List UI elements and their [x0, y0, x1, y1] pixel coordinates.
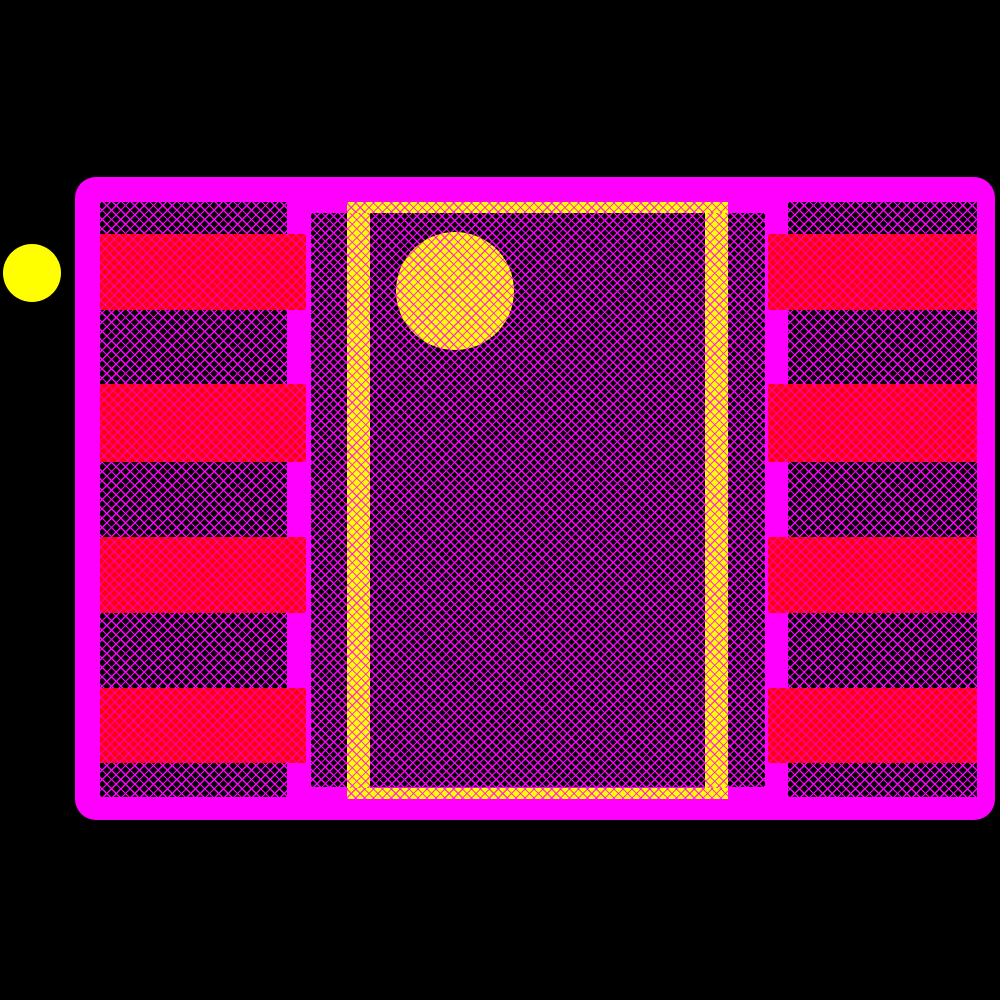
pad-left-2	[100, 384, 306, 462]
pad-right-3	[768, 537, 977, 613]
pad-left-3	[100, 537, 306, 613]
package-outline-top-bar	[347, 202, 728, 213]
pad-right-2	[768, 384, 977, 462]
pad-left-4	[100, 688, 306, 763]
pad-right-4	[768, 688, 977, 763]
pad-right-1	[768, 234, 977, 310]
package-outline-bottom-bar	[347, 788, 728, 799]
pin1-outer-marker	[3, 244, 61, 302]
package-outline-right-bar	[705, 202, 728, 799]
pin1-indicator-dot	[396, 232, 514, 350]
center-thermal-region	[311, 213, 765, 787]
package-outline-left-bar	[347, 202, 370, 799]
pad-left-1	[100, 234, 306, 310]
pcb-footprint-canvas	[0, 0, 1000, 1000]
